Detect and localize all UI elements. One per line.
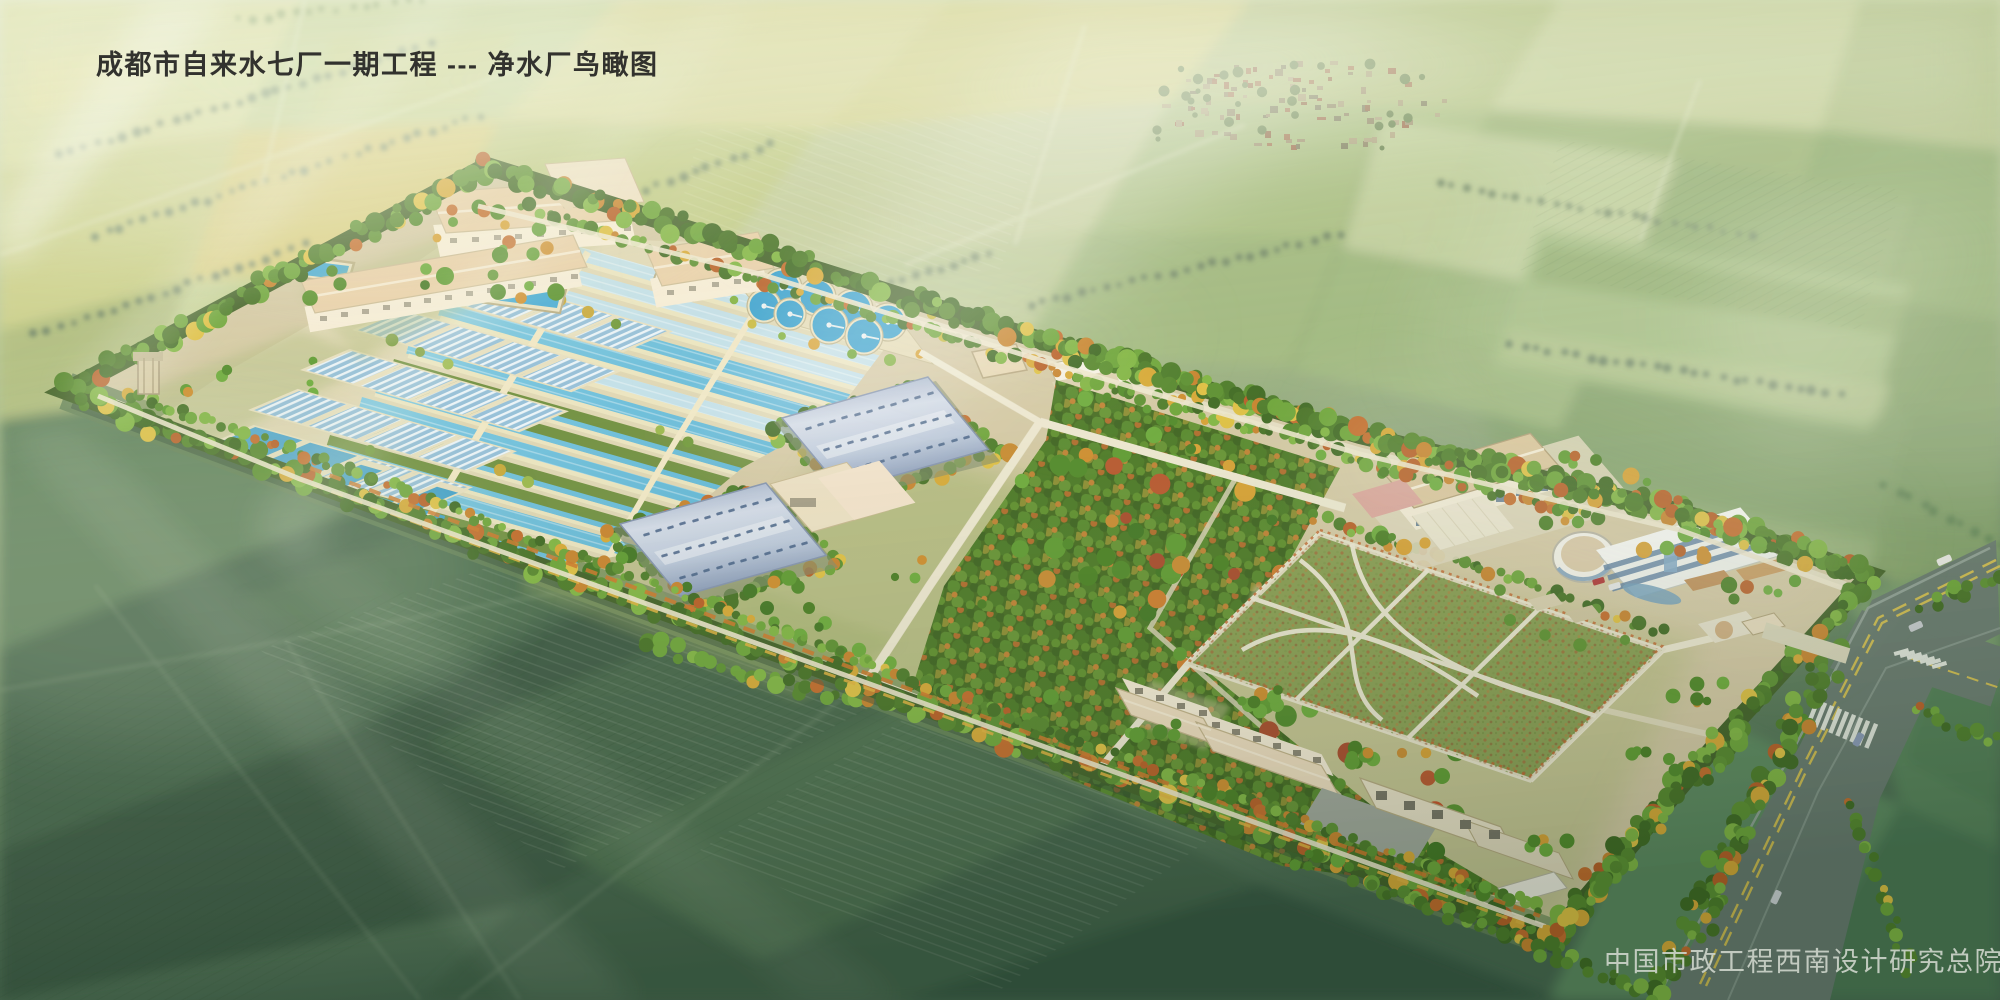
svg-text:成都市自来水七厂一期工程 --- 净水厂鸟瞰图: 成都市自来水七厂一期工程 --- 净水厂鸟瞰图 [96, 49, 658, 80]
svg-text:中国市政工程西南设计研究总院: 中国市政工程西南设计研究总院 [1604, 947, 2000, 977]
